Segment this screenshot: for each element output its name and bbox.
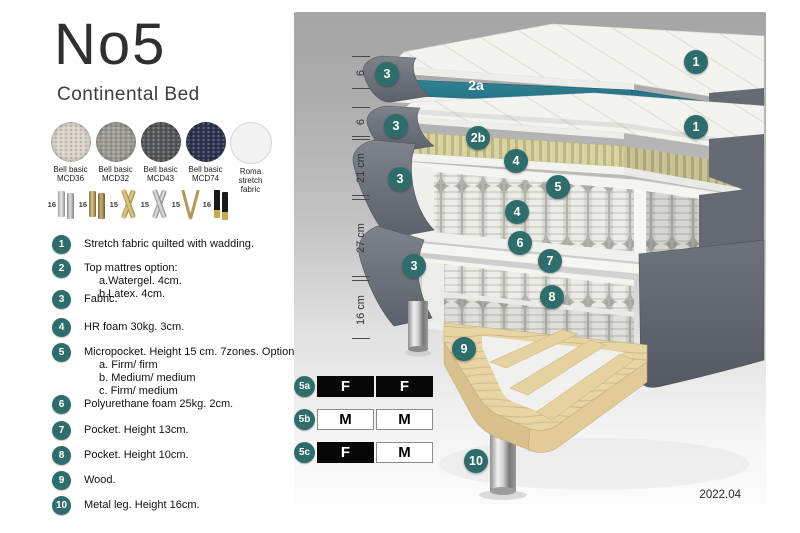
leg-thumbnail-icon	[150, 188, 169, 221]
leg-size: 15	[108, 200, 119, 209]
leg-thumbnail-icon	[212, 188, 231, 221]
legend-item-8: 8 Pocket. Height 10cm.	[52, 446, 189, 465]
fabric-swatch-circle	[141, 122, 181, 162]
page-title: No5	[54, 16, 166, 74]
fabric-swatch-label: Bell basicMCD43	[139, 165, 182, 183]
legend-text: Polyurethane foam 25kg. 2cm.	[84, 395, 233, 414]
fabric-swatch: Bell basicMCD43	[139, 122, 182, 194]
callout-1-second: 1	[684, 115, 708, 139]
dimension-16cm: 16 cm	[348, 280, 374, 339]
legend-text: Pocket. Height 10cm.	[84, 446, 189, 465]
legend-item-6: 6 Polyurethane foam 25kg. 2cm.	[52, 395, 233, 414]
legend-item-1: 1 Stretch fabric quilted with wadding.	[52, 235, 254, 254]
legend-text: HR foam 30kg. 3cm.	[84, 318, 184, 337]
callout-2b: 2b	[466, 126, 490, 150]
legend-number-badge: 2	[52, 259, 71, 278]
legend-text: Fabric.	[84, 290, 118, 309]
leg-size: 16	[201, 200, 212, 209]
fabric-swatch-label: Bell basicMCD74	[184, 165, 227, 183]
legend-number-badge: 10	[52, 496, 71, 515]
callout-3-top: 3	[375, 62, 399, 86]
legend-item-3: 3 Fabric.	[52, 290, 118, 309]
callout-9: 9	[452, 337, 476, 361]
page-subtitle: Continental Bed	[57, 84, 200, 106]
dimension-27cm: 27 cm	[348, 199, 374, 277]
leg-size: 15	[139, 200, 150, 209]
fabric-swatch: Bell basicMCD74	[184, 122, 227, 194]
firmness-badge: 5c	[294, 442, 315, 463]
firmness-badge: 5b	[294, 409, 315, 430]
leg-option: 16	[77, 188, 107, 221]
firmness-cell: F	[317, 442, 374, 463]
legend-number-badge: 7	[52, 421, 71, 440]
firmness-badge: 5a	[294, 376, 315, 397]
callout-4-upper: 4	[504, 149, 528, 173]
leg-option: 15	[170, 188, 200, 221]
callout-7: 7	[538, 249, 562, 273]
callout-2a: 2a	[464, 73, 488, 97]
firmness-cell: M	[317, 409, 374, 430]
firmness-cell: M	[376, 442, 433, 463]
callout-10: 10	[464, 449, 488, 473]
callout-8: 8	[540, 285, 564, 309]
legend-number-badge: 6	[52, 395, 71, 414]
callout-3-third: 3	[388, 167, 412, 191]
legend-number-badge: 1	[52, 235, 71, 254]
firmness-cell: F	[317, 376, 374, 397]
legend-text: Micropocket. Height 15 cm. 7zones. Optio…	[84, 343, 297, 398]
leg-option: 16	[201, 188, 231, 221]
leg-size: 16	[46, 200, 57, 209]
fabric-swatches: Bell basicMCD36 Bell basicMCD32 Bell bas…	[49, 122, 272, 194]
legend-number-badge: 9	[52, 471, 71, 490]
legend-item-10: 10 Metal leg. Height 16cm.	[52, 496, 200, 515]
firmness-cell: F	[376, 376, 433, 397]
firmness-row-5b: 5b M M	[294, 409, 433, 430]
legend-number-badge: 5	[52, 343, 71, 362]
legend-number-badge: 3	[52, 290, 71, 309]
leg-option: 16	[46, 188, 76, 221]
firmness-cell: M	[376, 409, 433, 430]
legend-text: Wood.	[84, 471, 116, 490]
leg-thumbnail-icon	[119, 188, 138, 221]
dimension-6-top: 6	[348, 56, 374, 89]
fabric-swatch: Bell basicMCD36	[49, 122, 92, 194]
callout-1-top: 1	[684, 50, 708, 74]
bed-diagram-panel: 6 6 21 cm 27 cm 16 cm 3 2a 1 3 2b 1 4 5 …	[294, 12, 766, 504]
fabric-swatch-circle	[96, 122, 136, 162]
leg-option: 15	[108, 188, 138, 221]
fabric-swatch-circle	[186, 122, 226, 162]
leg-options: 16 16 15 15 15 16	[46, 188, 231, 221]
callout-6: 6	[508, 231, 532, 255]
legend-item-4: 4 HR foam 30kg. 3cm.	[52, 318, 184, 337]
leg-thumbnail-icon	[57, 188, 76, 221]
legend-item-5: 5 Micropocket. Height 15 cm. 7zones. Opt…	[52, 343, 297, 398]
fabric-swatch: Bell basicMCD32	[94, 122, 137, 194]
firmness-row-5c: 5c F M	[294, 442, 433, 463]
leg-size: 16	[77, 200, 88, 209]
fabric-swatch-circle	[230, 122, 272, 164]
callout-4-lower: 4	[505, 200, 529, 224]
leg-option: 15	[139, 188, 169, 221]
leg-size: 15	[170, 200, 181, 209]
firmness-row-5a: 5a F F	[294, 376, 433, 397]
fabric-swatch-label: Bell basicMCD32	[94, 165, 137, 183]
legend-text: Stretch fabric quilted with wadding.	[84, 235, 254, 254]
legend-text: Pocket. Height 13cm.	[84, 421, 189, 440]
fabric-swatch-label: Bell basicMCD36	[49, 165, 92, 183]
callout-3-fourth: 3	[402, 254, 426, 278]
version-date: 2022.04	[699, 489, 741, 501]
legend-number-badge: 4	[52, 318, 71, 337]
legend-item-7: 7 Pocket. Height 13cm.	[52, 421, 189, 440]
leg-thumbnail-icon	[181, 188, 200, 221]
legend-number-badge: 8	[52, 446, 71, 465]
callout-3-second: 3	[384, 114, 408, 138]
dimension-6-latex: 6	[348, 107, 374, 137]
fabric-swatch-label: Romastretch fabric	[229, 167, 272, 194]
leg-thumbnail-icon	[88, 188, 107, 221]
legend-text: Metal leg. Height 16cm.	[84, 496, 200, 515]
dimension-21cm: 21 cm	[348, 139, 374, 196]
legend-item-9: 9 Wood.	[52, 471, 116, 490]
callout-5: 5	[546, 175, 570, 199]
fabric-swatch-circle	[51, 122, 91, 162]
product-sheet: No5 Continental Bed Bell basicMCD36 Bell…	[0, 0, 800, 533]
fabric-swatch: Romastretch fabric	[229, 122, 272, 194]
